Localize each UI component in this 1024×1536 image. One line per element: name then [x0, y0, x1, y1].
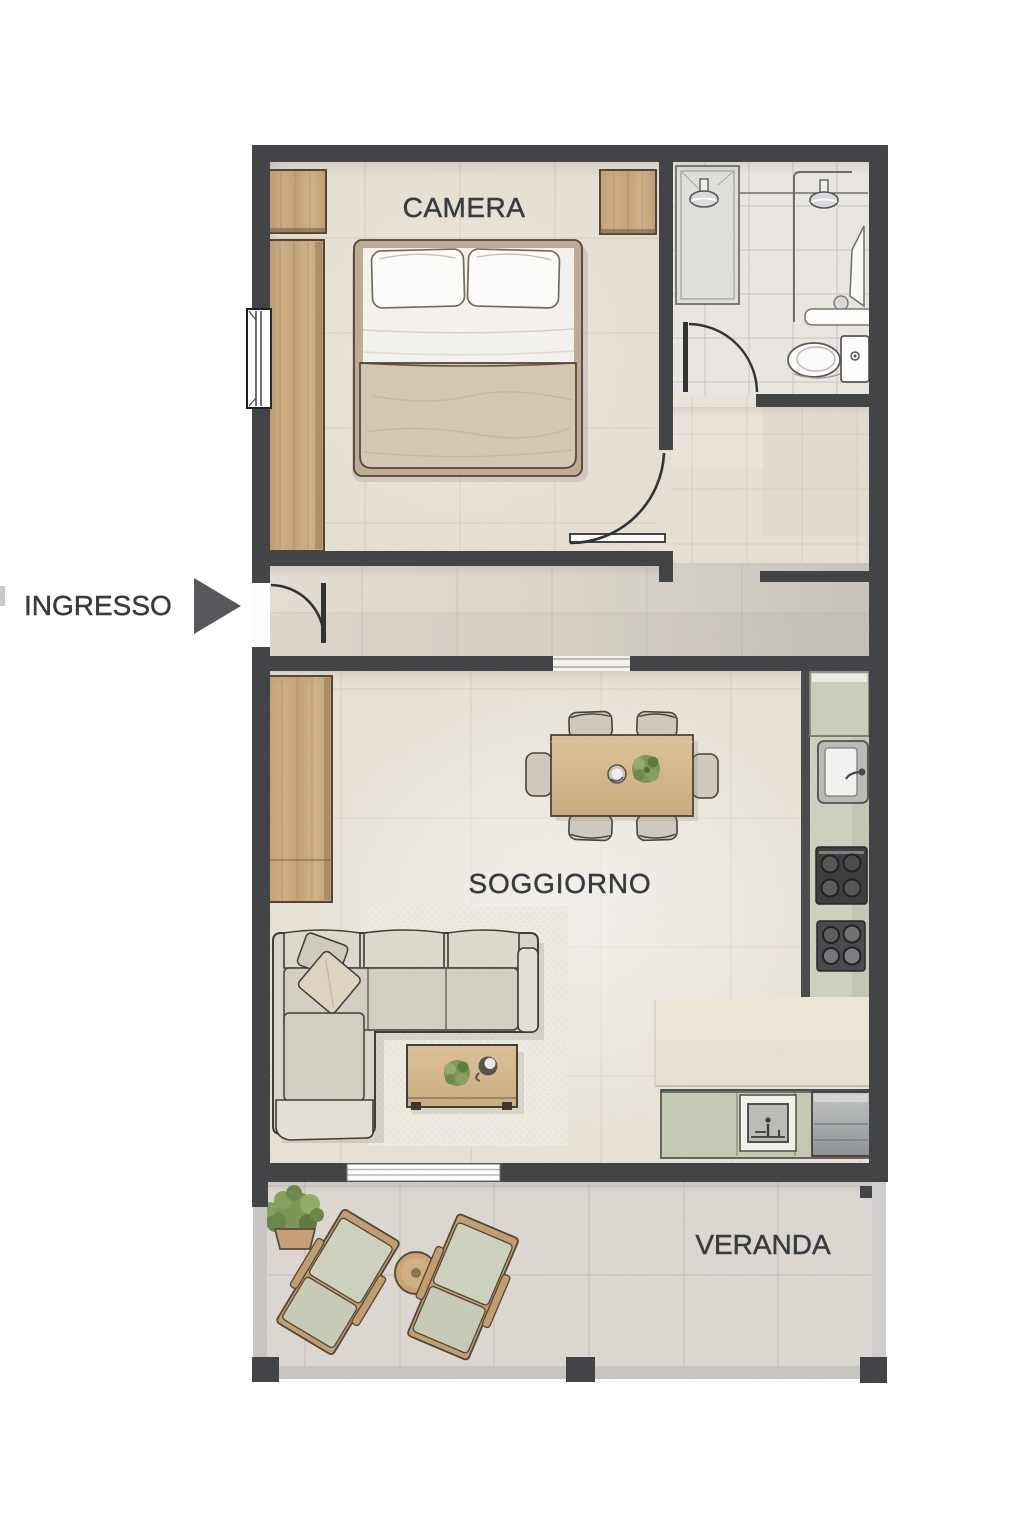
svg-text:INGRESSO: INGRESSO [24, 590, 172, 621]
svg-text:VERANDA: VERANDA [695, 1229, 831, 1260]
svg-text:SOGGIORNO: SOGGIORNO [469, 868, 652, 899]
svg-text:CAMERA: CAMERA [403, 192, 526, 223]
